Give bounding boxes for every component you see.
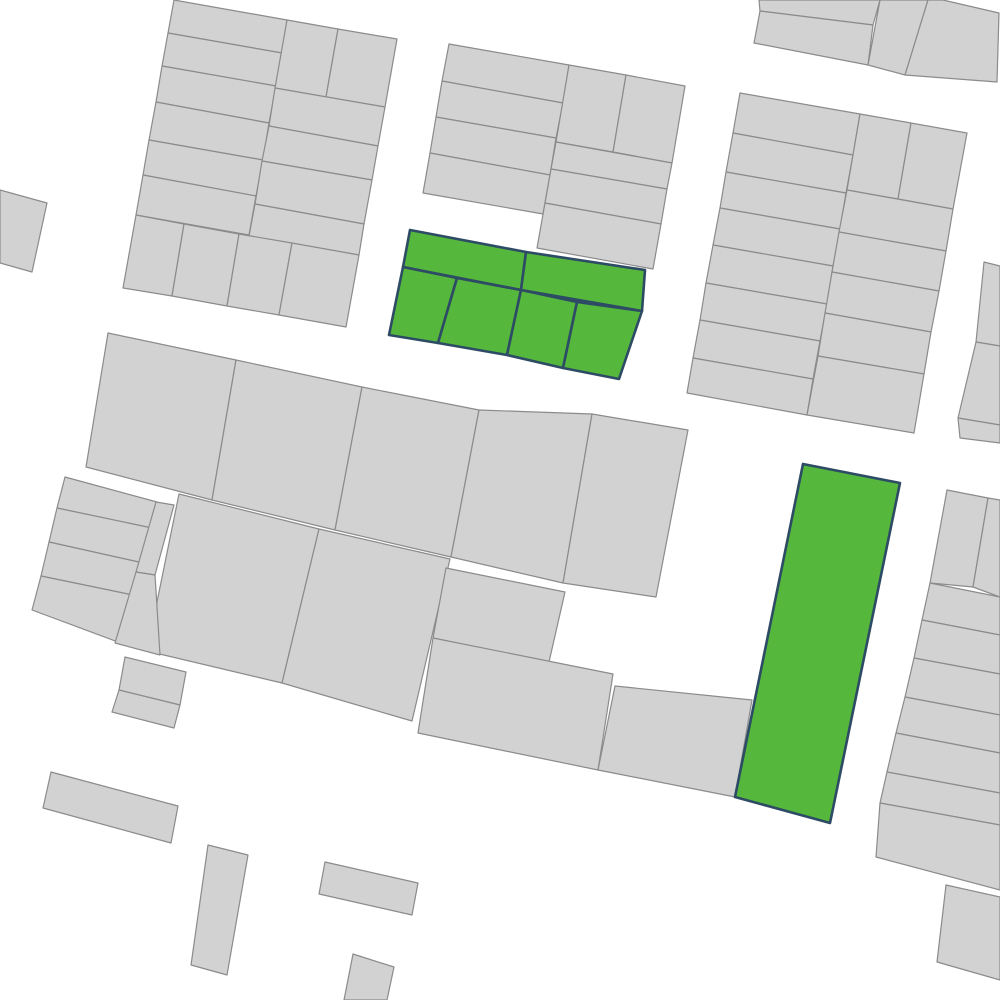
parcel-se-corner[interactable] [937,885,1000,980]
parcel-bar-d[interactable] [344,954,394,1000]
parcel-bar-b[interactable] [191,845,248,975]
parcel-map-canvas [0,0,1000,1000]
parcel-nw-b4[interactable] [279,243,359,327]
parcel-n-rp2[interactable] [613,75,685,163]
parcel-er-1[interactable] [976,262,1000,346]
parcel-bar-c[interactable] [319,862,418,915]
parcel-bar-a[interactable] [43,772,178,843]
parcel-s-c[interactable] [598,686,752,797]
highlight-parcel-b[interactable] [735,464,900,823]
parcel-e-rp2[interactable] [898,123,967,209]
parcel-mid-1[interactable] [86,333,236,500]
parcel-nw-rp2[interactable] [326,29,397,107]
parcel-s-b[interactable] [418,638,613,770]
map-viewport [0,0,1000,1000]
parcel-er-2[interactable] [958,342,1000,425]
highlight-parcel-a6[interactable] [563,302,642,379]
parcel-w-edge[interactable] [0,190,47,272]
